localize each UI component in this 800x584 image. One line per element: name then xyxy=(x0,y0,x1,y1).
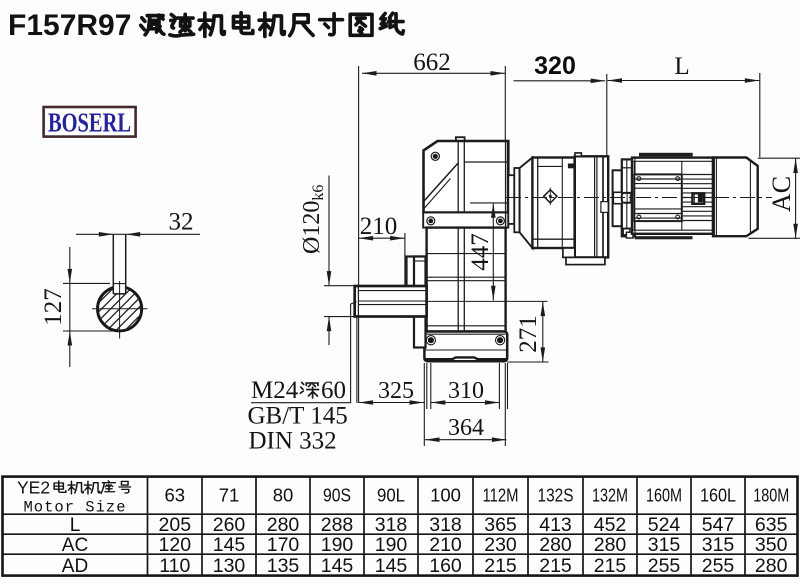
svg-text:364: 364 xyxy=(448,415,484,441)
svg-text:127: 127 xyxy=(40,288,67,326)
svg-text:215: 215 xyxy=(594,555,627,577)
svg-text:452: 452 xyxy=(594,514,627,536)
svg-text:71: 71 xyxy=(219,485,240,506)
svg-text:230: 230 xyxy=(484,534,517,556)
svg-text:L: L xyxy=(70,515,81,536)
svg-text:280: 280 xyxy=(594,534,627,556)
svg-text:YE2: YE2 xyxy=(17,478,50,498)
svg-text:365: 365 xyxy=(484,514,517,536)
svg-text:318: 318 xyxy=(375,514,408,536)
svg-text:145: 145 xyxy=(213,534,246,556)
svg-text:GB/T 145: GB/T 145 xyxy=(248,403,348,430)
svg-text:280: 280 xyxy=(267,514,300,536)
svg-text:280: 280 xyxy=(539,534,572,556)
svg-text:135: 135 xyxy=(267,555,300,577)
svg-text:215: 215 xyxy=(539,555,572,577)
svg-text:170: 170 xyxy=(267,534,300,556)
svg-text:160: 160 xyxy=(429,555,462,577)
svg-text:180M: 180M xyxy=(753,485,789,506)
svg-text:271: 271 xyxy=(515,315,542,353)
svg-text:63: 63 xyxy=(165,485,186,506)
svg-text:160L: 160L xyxy=(700,485,736,506)
svg-text:524: 524 xyxy=(648,514,681,536)
svg-text:350: 350 xyxy=(755,534,788,556)
svg-text:120: 120 xyxy=(159,534,192,556)
svg-text:662: 662 xyxy=(413,49,451,76)
svg-text:215: 215 xyxy=(484,555,517,577)
svg-text:255: 255 xyxy=(702,555,735,577)
svg-text:315: 315 xyxy=(648,534,681,556)
svg-text:132S: 132S xyxy=(538,485,574,506)
svg-text:635: 635 xyxy=(755,514,788,536)
svg-text:210: 210 xyxy=(429,534,462,556)
svg-text:F157R97: F157R97 xyxy=(8,9,131,42)
svg-text:190: 190 xyxy=(321,534,354,556)
svg-text:Motor Size: Motor Size xyxy=(23,499,126,517)
svg-text:288: 288 xyxy=(321,514,354,536)
svg-text:190: 190 xyxy=(375,534,408,556)
svg-text:32: 32 xyxy=(169,209,194,236)
svg-text:413: 413 xyxy=(539,514,572,536)
svg-text:318: 318 xyxy=(429,514,462,536)
svg-text:260: 260 xyxy=(213,514,246,536)
svg-text:130: 130 xyxy=(213,555,246,577)
svg-text:DIN 332: DIN 332 xyxy=(249,428,337,455)
svg-text:447: 447 xyxy=(467,233,494,271)
svg-text:315: 315 xyxy=(702,534,735,556)
svg-text:100: 100 xyxy=(430,485,461,506)
svg-text:BOSERL: BOSERL xyxy=(48,108,131,138)
svg-text:210: 210 xyxy=(360,213,398,240)
svg-text:90S: 90S xyxy=(323,485,351,506)
svg-text:90L: 90L xyxy=(377,485,405,506)
svg-text:AD: AD xyxy=(62,556,88,577)
svg-text:325: 325 xyxy=(378,378,414,404)
svg-text:AC: AC xyxy=(767,176,796,212)
svg-text:110: 110 xyxy=(159,555,190,577)
svg-text:160M: 160M xyxy=(646,485,682,506)
svg-text:M24: M24 xyxy=(251,377,299,404)
svg-text:205: 205 xyxy=(159,514,192,536)
svg-text:132M: 132M xyxy=(592,485,628,506)
svg-text:60: 60 xyxy=(321,377,346,404)
svg-text:320: 320 xyxy=(534,52,576,80)
svg-text:112M: 112M xyxy=(483,485,519,506)
svg-text:280: 280 xyxy=(755,555,788,577)
svg-text:255: 255 xyxy=(648,555,681,577)
svg-text:L: L xyxy=(674,53,689,80)
svg-text:310: 310 xyxy=(448,378,484,404)
svg-text:145: 145 xyxy=(375,555,408,577)
svg-text:145: 145 xyxy=(321,555,354,577)
svg-text:547: 547 xyxy=(702,514,735,536)
svg-text:AC: AC xyxy=(62,535,88,556)
svg-text:80: 80 xyxy=(273,485,294,506)
